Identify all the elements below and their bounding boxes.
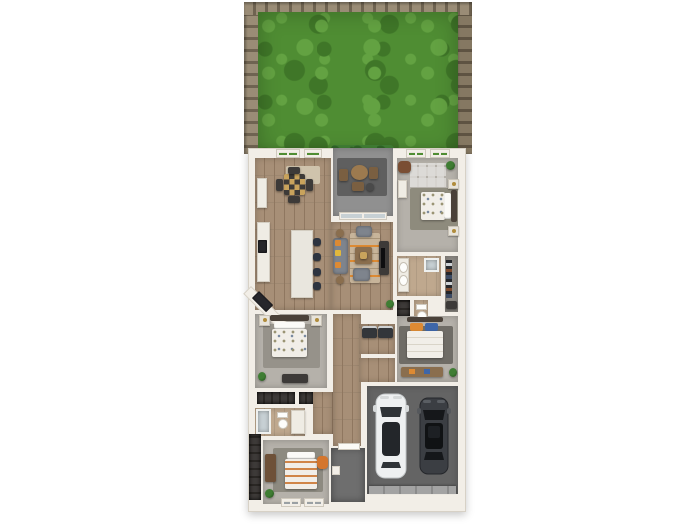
washer: [362, 326, 377, 338]
bedroom-4-window-2: [304, 498, 324, 507]
coffee-table-tray: [360, 252, 367, 259]
dryer: [378, 326, 393, 338]
garage-door: [369, 486, 456, 494]
dining-chair-left: [276, 179, 283, 191]
bedroom-2-closet: [257, 392, 295, 404]
sofa-pillow-yellow: [335, 250, 341, 256]
bedroom-2-pillows: [274, 322, 305, 329]
primary-plant: [446, 161, 455, 170]
bathroom-2-vanity: [291, 410, 305, 434]
primary-shower: [424, 258, 439, 272]
cooktop: [258, 240, 267, 253]
toilet: [416, 304, 427, 318]
primary-armchair: [398, 161, 411, 173]
patio-chair-bottom: [352, 182, 364, 191]
armchair-bottom: [353, 268, 370, 281]
island-stool-2: [313, 253, 321, 261]
fence-right: [456, 4, 472, 154]
primary-nightstand-1: [448, 179, 459, 189]
white-suv: [373, 392, 409, 480]
bedroom-3-pillow-orange: [410, 323, 423, 331]
bedroom-2-bed: [272, 329, 307, 357]
armchair-top: [356, 226, 372, 237]
patio-sliding-door: [339, 212, 387, 220]
bedroom-3-headboard: [407, 317, 443, 322]
dark-sedan: [417, 396, 451, 476]
vanity-sink-2: [399, 275, 408, 286]
bedroom-2-dresser: [282, 374, 308, 383]
primary-bed: [421, 192, 445, 220]
hallway: [333, 314, 361, 446]
primary-pillows: [444, 193, 451, 219]
side-table-top: [336, 229, 344, 237]
bedroom-3-dresser: [401, 367, 443, 377]
bedroom-4-pillows: [287, 452, 315, 459]
front-door: [338, 443, 360, 450]
bedroom-3-plant: [449, 368, 457, 377]
closet-shoe-shelf: [446, 301, 457, 309]
backyard-lawn: [258, 12, 458, 154]
window-light-patch: [410, 163, 446, 187]
dining-sideboard: [257, 178, 267, 208]
dining-chair-bottom: [288, 196, 300, 203]
patio-table: [351, 165, 368, 180]
bedroom-4-chair: [317, 456, 328, 469]
dining-chair-top: [288, 167, 300, 174]
dining-chair-right: [306, 179, 313, 191]
front-porch: [331, 448, 365, 502]
bedroom-2-plant: [258, 372, 266, 381]
bedroom-2-nightstand-1: [259, 315, 270, 326]
side-table-bottom: [336, 276, 344, 284]
bathroom-2-shower: [256, 409, 271, 434]
island-stool-3: [313, 268, 321, 276]
bedroom-2-nightstand-2: [311, 315, 322, 326]
bedroom-4-plant: [265, 489, 274, 498]
bedroom-3-dresser-items: [409, 369, 415, 374]
hall-closet: [249, 434, 261, 500]
bedroom-4-bed: [285, 459, 317, 489]
linen-closet: [397, 300, 410, 316]
bedroom-3-bed: [407, 331, 443, 358]
dining-table: [284, 174, 305, 195]
primary-window-2: [430, 149, 450, 158]
dining-window-2: [304, 149, 322, 158]
living-plant: [386, 300, 394, 308]
hallway-branch: [313, 392, 333, 434]
vanity-sink-1: [399, 262, 408, 273]
primary-window-1: [406, 149, 426, 158]
patio-stool: [366, 183, 374, 191]
dining-window-1: [276, 149, 300, 158]
hall-shelf: [299, 392, 313, 404]
tv-screen: [381, 248, 385, 268]
bedroom-3-dresser-item-2: [424, 369, 430, 374]
sofa-pillow-orange-2: [335, 262, 341, 268]
closet-clothes-rack: [446, 260, 452, 298]
kitchen-island: [291, 230, 313, 298]
primary-headboard: [451, 190, 457, 222]
bedroom-3-pillow-blue: [425, 323, 438, 331]
primary-nightstand-2: [448, 226, 459, 236]
island-stool-1: [313, 238, 321, 246]
sofa-pillow-orange-1: [335, 240, 341, 246]
bathroom-2-toilet: [277, 412, 288, 426]
floor-plan-render: [0, 0, 700, 525]
island-stool-4: [313, 282, 321, 290]
patio-chair-right: [369, 167, 378, 179]
bedroom-2-headboard: [270, 315, 309, 321]
bedroom-4-window-1: [281, 498, 301, 507]
bedroom-4-dresser: [265, 454, 276, 482]
primary-dresser: [398, 180, 407, 198]
porch-column: [332, 466, 340, 475]
patio-chair-left: [339, 169, 348, 181]
garage-entry: [359, 358, 395, 382]
